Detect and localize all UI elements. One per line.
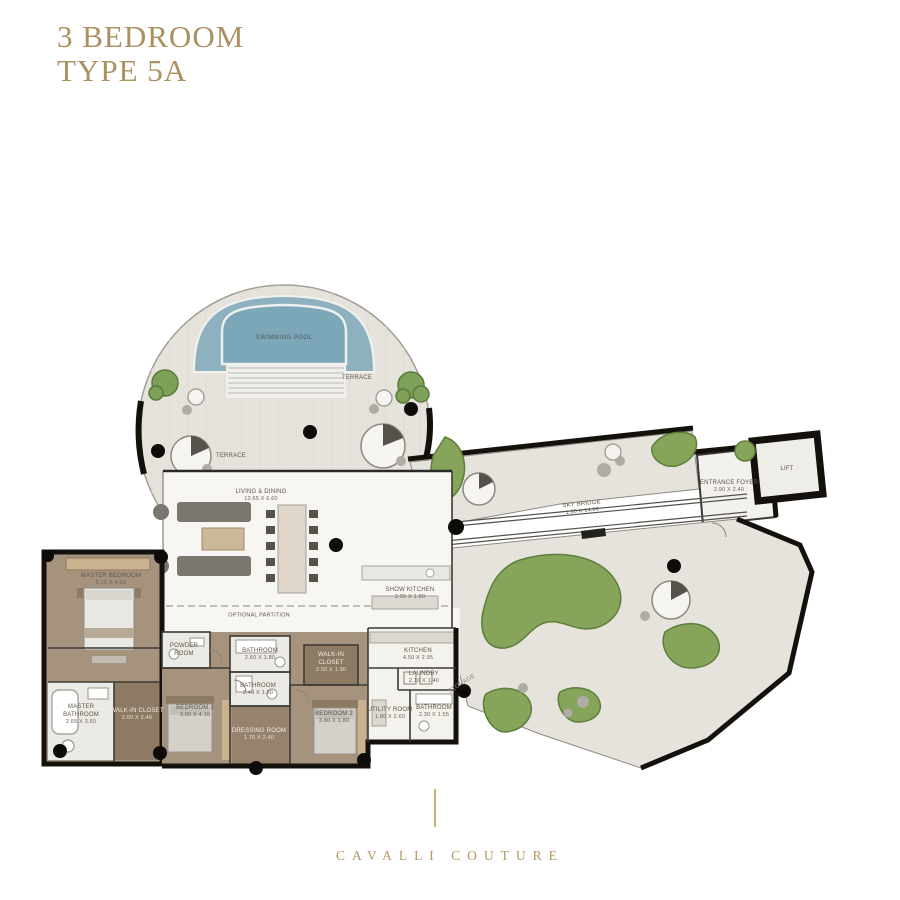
label-bathroom-c: BATHROOM2.30 X 1.55 xyxy=(416,704,452,720)
label-living-dining: LIVING & DINING13.65 X 6.60 xyxy=(235,488,286,504)
label-kitchen: KITCHEN4.50 X 2.95 xyxy=(403,647,433,663)
label-dressing-room: DRESSING ROOM1.70 X 2.40 xyxy=(232,727,286,743)
label-utility-room: UTILITY ROOM1.80 X 2.60 xyxy=(368,706,413,722)
label-terrace-upper: TERRACE xyxy=(342,374,372,382)
label-bathroom-b: BATHROOM2.40 X 1.80 xyxy=(240,682,276,698)
label-swimming-pool: SWIMMING POOL xyxy=(256,334,313,342)
label-walk-in-closet-2: WALK-INCLOSET2.50 X 1.90 xyxy=(316,651,346,675)
label-walk-in-closet-master: WALK-IN CLOSET2.60 X 2.40 xyxy=(110,707,163,723)
label-optional-partition: OPTIONAL PARTITION xyxy=(228,612,290,619)
page: 3 BEDROOM TYPE 5A xyxy=(0,0,900,900)
pool-steps xyxy=(226,364,346,398)
label-bedroom-2: BEDROOM 23.80 X 3.80 xyxy=(315,710,353,726)
label-powder-room: POWDERROOM xyxy=(170,642,198,658)
label-entrance-foyer: ENTRANCE FOYER2.90 X 2.40 xyxy=(700,479,758,495)
label-bedroom-1: BEDROOM 13.80 X 4.10 xyxy=(176,704,214,720)
label-master-bedroom: MASTER BEDROOM5.10 X 4.00 xyxy=(81,572,141,588)
label-lift: LIFT xyxy=(780,465,793,473)
label-bathroom-a: BATHROOM2.60 X 1.80 xyxy=(242,647,278,663)
label-show-kitchen: SHOW KITCHEN2.95 X 1.80 xyxy=(385,586,434,602)
footer-divider xyxy=(434,789,436,827)
label-laundry: LAUNDRY2.10 X 1.40 xyxy=(409,670,439,686)
label-terrace-left: TERRACE xyxy=(216,452,246,460)
label-master-bathroom: MASTERBATHROOM2.65 X 3.60 xyxy=(63,703,99,727)
floor-plan: SWIMMING POOL TERRACE TERRACE LIVING & D… xyxy=(0,0,900,900)
floor-plan-graphic xyxy=(0,0,900,900)
brand-wordmark: CAVALLI COUTURE xyxy=(0,848,900,864)
